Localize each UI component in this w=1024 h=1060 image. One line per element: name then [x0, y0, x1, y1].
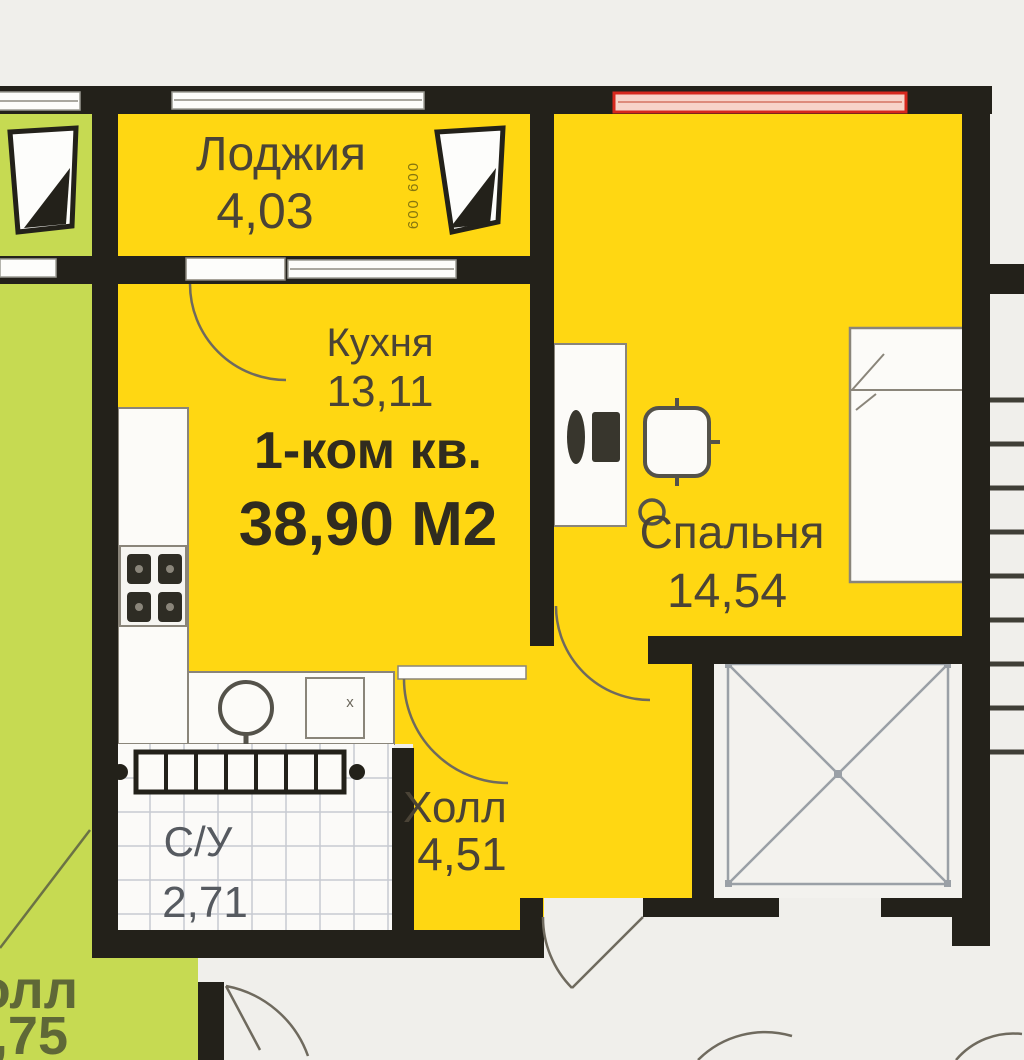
- kitchen-name: Кухня: [326, 321, 433, 365]
- vent-shaft-icon-green: [10, 128, 76, 232]
- bed-icon: [850, 328, 964, 582]
- door-hall-leaf: [398, 666, 526, 679]
- hall-name: Холл: [403, 783, 507, 832]
- bathroom-area: 2,71: [162, 878, 248, 927]
- wall-elevator-left: [692, 650, 714, 914]
- bedroom-area: 14,54: [667, 565, 787, 618]
- kitchen-area: 13,11: [327, 367, 434, 416]
- wall-left: [92, 86, 118, 958]
- wall-bottom: [92, 930, 544, 958]
- loggia-area: 4,03: [216, 183, 313, 239]
- wall-stair-stub: [962, 264, 1024, 294]
- neighbor-room-area: ,75: [0, 1006, 68, 1060]
- wall-right: [962, 86, 990, 914]
- wall-corridor-top: [643, 898, 779, 917]
- floor-plan: x: [0, 0, 1024, 1060]
- hall-area: 4,51: [417, 828, 507, 880]
- room-hall-right: [543, 636, 692, 898]
- elevator-shaft-icon: [714, 650, 962, 898]
- bathroom-name: С/У: [164, 818, 233, 865]
- appliance-mark: x: [346, 694, 354, 711]
- vent-shaft-label: 600 600: [405, 161, 422, 229]
- desk-icon: [554, 344, 626, 526]
- neighbor-room: [0, 112, 92, 1060]
- wall-right-stub: [952, 898, 990, 946]
- stove-icon: [120, 546, 186, 626]
- wall-neighbor-stub: [198, 982, 224, 1060]
- window-green-lower: [0, 259, 56, 277]
- radiator-icon: [112, 752, 365, 792]
- monitor-icon: [567, 410, 585, 464]
- wall-entry-stub: [520, 898, 543, 958]
- door-loggia-leaf: [186, 258, 285, 280]
- floor-plan-svg: x: [0, 0, 1024, 1060]
- wall-bathroom-hall: [392, 748, 414, 932]
- wall-kitchen-bedroom: [530, 112, 554, 646]
- appliance-icon: x: [306, 678, 364, 738]
- apartment-title: 1-ком кв.: [254, 422, 482, 480]
- apartment-area: 38,90 М2: [239, 490, 498, 559]
- loggia-name: Лоджия: [196, 128, 366, 181]
- bedroom-name: Спальня: [640, 506, 825, 558]
